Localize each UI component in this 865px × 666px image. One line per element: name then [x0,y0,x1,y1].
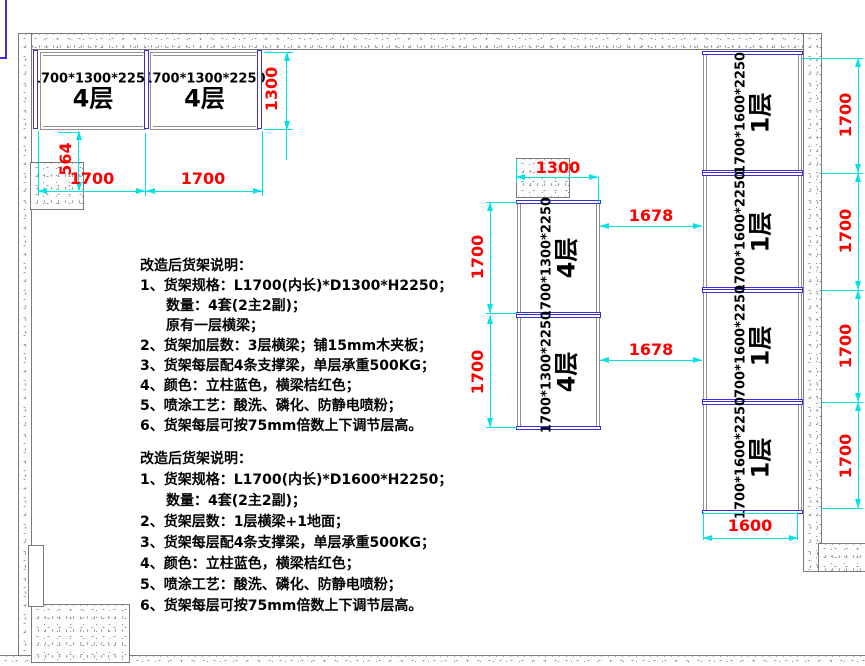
concrete-pad-bottom-left [31,604,130,663]
note-line: 改造后货架说明： [140,449,452,470]
wall-right-arm [818,543,865,572]
dim-text-width: 1700 [62,170,122,188]
dim-arrow [855,281,861,290]
dim-arrow [516,174,525,180]
rack-box: 1700*1300*2250 4层 [517,201,600,315]
rack-layers-label: 4层 [554,238,578,279]
dim-text-gap: 1678 [621,341,681,359]
cad-drawing-canvas: 1700*1300*2250 4层 1700*1300*2250 4层 1300… [0,0,865,666]
dim-line [516,177,598,178]
rack-label: 1700*1300*2250 4层 [143,71,265,110]
dim-ext-line [262,131,263,196]
rack-layers-label: 4层 [554,352,578,393]
dim-ext-line [802,58,863,59]
dim-ext-line [145,133,146,196]
dim-line [490,315,491,427]
dim-ext-line [822,508,863,509]
dim-arrow [855,173,861,182]
dim-ext-line [486,313,517,314]
wall-right [803,33,822,572]
dim-arrow [76,131,82,140]
dim-arrow [855,499,861,508]
dim-line [600,360,702,361]
rack-label: 1700*1600*2250 1层 [733,170,772,292]
dim-text-width: 1600 [720,517,780,535]
dim-arrow [855,164,861,173]
dim-text-depth: 1300 [263,59,281,119]
rack-layers-label: 1层 [748,326,772,367]
notes-block-modified-racks-b: 改造后货架说明： 1、货架规格：L1700(内长)*D1600*H2250； 数… [140,449,452,617]
dim-arrow [600,223,609,229]
dim-arrow [487,418,493,427]
dim-line [703,538,798,539]
wall-top [18,33,822,50]
dim-text-gap: 1678 [621,207,681,225]
dim-arrow [855,290,861,299]
note-line: 3、货架每层配4条支撑梁，单层承重500KG； [140,533,452,554]
note-line: 3、货架每层配4条支撑梁，单层承重500KG； [140,356,452,376]
note-line: 4、颜色：立柱蓝色，横梁桔红色； [140,376,452,396]
dim-arrow [487,304,493,313]
note-line: 原有一层横梁； [140,316,452,336]
rack-box: 1700*1600*2250 1层 [703,402,802,513]
note-line: 1、货架规格：L1700(内长)*D1600*H2250； [140,470,452,491]
dim-arrow [487,315,493,324]
dim-arrow [146,188,155,194]
rack-post-bar [144,50,149,129]
dim-arrow [693,223,702,229]
dim-text-width: 1700 [173,170,233,188]
dim-ext-line [598,177,599,203]
wall-pilaster [28,545,44,607]
dim-arrow [487,202,493,211]
dim-text-height: 1700 [469,342,487,402]
dim-arrow [600,357,609,363]
note-line: 改造后货架说明： [140,256,452,276]
dim-arrow [703,535,712,541]
dim-arrow [855,402,861,411]
rack-box: 1700*1300*2250 4层 [150,52,259,130]
dim-line [490,202,491,313]
rack-layers-label: 1层 [748,92,772,133]
dim-line [600,226,702,227]
note-line: 5、喷涂工艺：酸洗、磷化、防静电喷粉； [140,396,452,416]
rack-layers-label: 1层 [748,437,772,478]
dim-arrow [589,174,598,180]
note-line: 6、货架每层可按75mm倍数上下调节层高。 [140,596,452,617]
dim-line [286,52,287,160]
dim-text-height: 1700 [837,201,855,261]
dim-ext-line [38,131,39,196]
dim-ext-line [486,427,517,428]
dim-arrow [38,188,47,194]
notes-block-modified-racks-a: 改造后货架说明： 1、货架规格：L1700(内长)*D1300*H2250； 数… [140,256,452,436]
rack-layers-label: 4层 [73,86,114,110]
note-line: 4、颜色：立柱蓝色，横梁桔红色； [140,554,452,575]
dim-arrow [855,58,861,67]
rack-label: 1700*1600*2250 1层 [733,51,772,173]
rack-box: 1700*1300*2250 4层 [517,315,600,429]
note-line: 6、货架每层可按75mm倍数上下调节层高。 [140,416,452,436]
dim-arrow [284,52,290,61]
dim-arrow [253,188,262,194]
note-line: 2、货架加层数：3层横梁；铺15mm木夹板； [140,336,452,356]
dim-arrow [284,121,290,130]
dim-arrow [789,535,798,541]
note-line: 2、货架层数：1层横梁+1地面； [140,512,452,533]
dim-text-height: 1700 [837,85,855,145]
viewport-corner-hline [0,57,7,59]
dim-text-top: 1300 [528,159,588,177]
note-line: 1、货架规格：L1700(内长)*D1300*H2250； [140,276,452,296]
rack-layers-label: 1层 [748,211,772,252]
rack-label: 1700*1300*2250 4层 [32,71,154,110]
dim-text-height: 1700 [469,227,487,287]
rack-label: 1700*1300*2250 4层 [539,311,578,433]
dim-arrow [136,188,145,194]
rack-label: 1700*1600*2250 1层 [733,396,772,518]
note-line: 5、喷涂工艺：酸洗、磷化、防静电喷粉； [140,575,452,596]
note-line: 数量：4套(2主2副)； [140,491,452,512]
dim-arrow [693,357,702,363]
note-line: 数量：4套(2主2副)； [140,296,452,316]
rack-box: 1700*1600*2250 1层 [703,173,802,290]
rack-box: 1700*1300*2250 4层 [40,52,146,130]
dim-text-height: 1700 [837,426,855,486]
rack-box: 1700*1600*2250 1层 [703,290,802,402]
rack-label: 1700*1600*2250 1层 [733,285,772,407]
dim-ext-line [703,513,798,514]
rack-label: 1700*1300*2250 4层 [539,197,578,319]
viewport-corner-vline [5,0,7,59]
dim-arrow [855,393,861,402]
rack-post-bar [33,50,38,129]
dim-text-height: 1700 [837,316,855,376]
rack-box: 1700*1600*2250 1层 [703,52,802,173]
rack-layers-label: 4层 [184,86,225,110]
